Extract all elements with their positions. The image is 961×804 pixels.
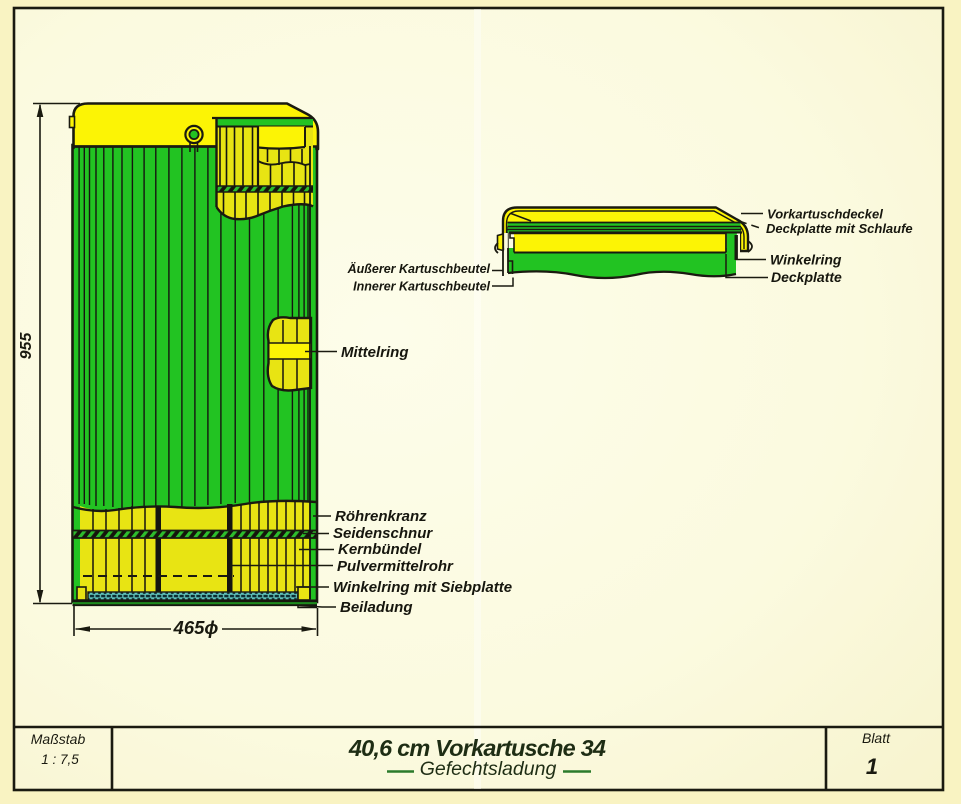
svg-text:Seidenschnur: Seidenschnur xyxy=(333,525,433,542)
svg-text:Beiladung: Beiladung xyxy=(340,599,413,616)
svg-text:Pulvermittelrohr: Pulvermittelrohr xyxy=(337,558,454,575)
svg-text:Innerer Kartuschbeutel: Innerer Kartuschbeutel xyxy=(353,280,490,294)
svg-text:Äußerer Kartuschbeutel: Äußerer Kartuschbeutel xyxy=(347,261,491,276)
svg-text:Deckplatte mit Schlaufe: Deckplatte mit Schlaufe xyxy=(766,221,913,236)
svg-text:Deckplatte: Deckplatte xyxy=(771,269,842,285)
svg-text:Mittelring: Mittelring xyxy=(341,344,409,361)
svg-text:Röhrenkranz: Röhrenkranz xyxy=(335,508,427,525)
svg-text:1: 1 xyxy=(866,754,878,779)
svg-text:Gefechtsladung: Gefechtsladung xyxy=(420,758,557,780)
svg-text:465ϕ: 465ϕ xyxy=(173,617,219,638)
svg-text:Winkelring: Winkelring xyxy=(770,252,842,268)
svg-text:Kernbündel: Kernbündel xyxy=(338,541,422,558)
svg-text:Vorkartuschdeckel: Vorkartuschdeckel xyxy=(767,207,883,222)
svg-text:Blatt: Blatt xyxy=(862,730,891,746)
svg-text:Maßstab: Maßstab xyxy=(31,731,86,747)
svg-text:1 : 7,5: 1 : 7,5 xyxy=(41,752,79,767)
svg-text:955: 955 xyxy=(18,332,35,360)
svg-text:Winkelring mit Siebplatte: Winkelring mit Siebplatte xyxy=(333,579,512,596)
